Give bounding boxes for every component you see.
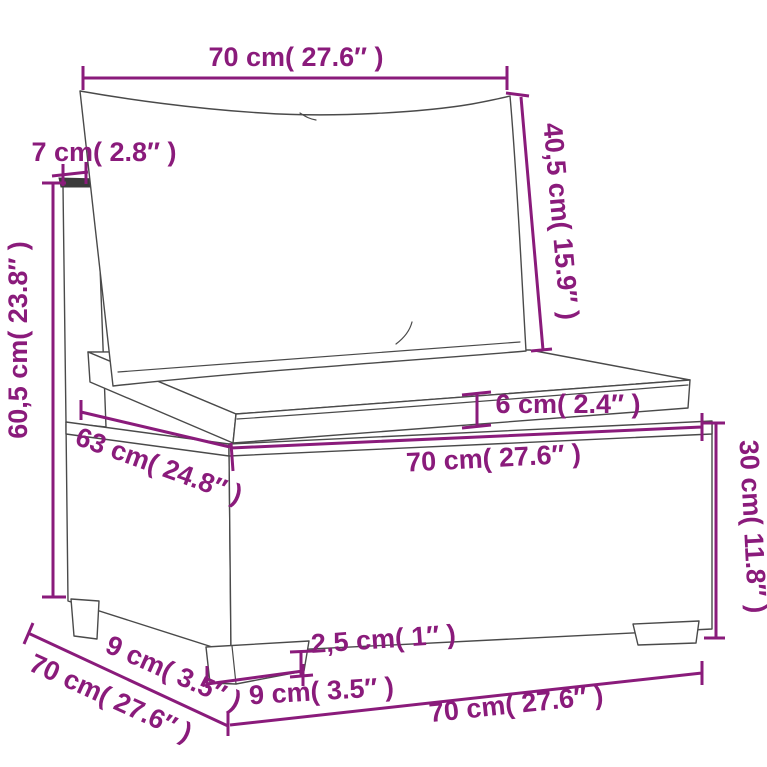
dim-backrest-thickness-label: 7 cm( 2.8″ ) xyxy=(32,137,177,167)
dim-seat-cushion-thickness-label: 6 cm( 2.4″ ) xyxy=(496,389,641,419)
foot-front-right xyxy=(633,621,699,645)
dim-back-cushion-width-label: 70 cm( 27.6″ ) xyxy=(208,42,383,72)
dim-overall-height-label: 60,5 cm( 23.8″ ) xyxy=(3,241,33,439)
sofa-dimension-diagram: 70 cm( 27.6″ ) 7 cm( 2.8″ ) 40,5 cm( 15.… xyxy=(0,0,767,767)
back-cushion xyxy=(80,91,526,386)
dim-back-cushion-width: 70 cm( 27.6″ ) xyxy=(83,42,507,90)
dim-base-height-label: 30 cm( 11.8″ ) xyxy=(733,439,767,614)
dim-overall-width-label: 70 cm( 27.6″ ) xyxy=(427,680,604,728)
dimension-diagram-page: 70 cm( 27.6″ ) 7 cm( 2.8″ ) 40,5 cm( 15.… xyxy=(0,0,767,767)
foot-back-left xyxy=(71,599,99,639)
sofa-artwork xyxy=(59,91,712,684)
dim-overall-height: 60,5 cm( 23.8″ ) xyxy=(3,183,66,597)
dim-back-cushion-height-label: 40,5 cm( 15.9″ ) xyxy=(537,122,584,321)
